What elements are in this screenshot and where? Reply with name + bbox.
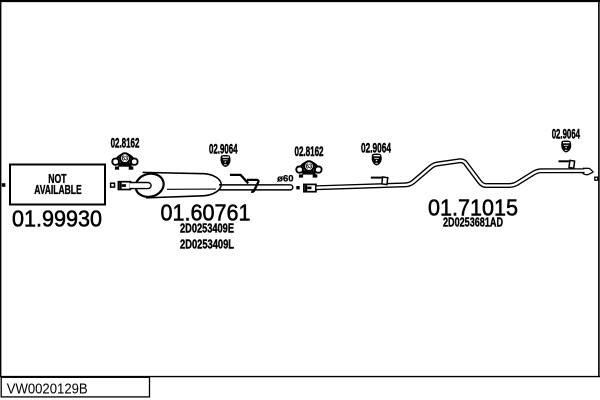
svg-text:AVAILABLE: AVAILABLE: [34, 183, 81, 197]
svg-text:ø60: ø60: [277, 173, 293, 183]
svg-text:63: 63: [122, 156, 128, 163]
svg-text:63: 63: [306, 164, 312, 171]
svg-text:2D0253681AD: 2D0253681AD: [443, 215, 503, 230]
svg-text:VW0020129B: VW0020129B: [7, 382, 88, 398]
svg-text:2D0253409E: 2D0253409E: [180, 221, 234, 236]
svg-text:01.99930: 01.99930: [12, 206, 102, 232]
svg-text:02.8162: 02.8162: [295, 143, 324, 159]
svg-text:02.9064: 02.9064: [361, 139, 391, 155]
svg-text:02.8162: 02.8162: [111, 135, 140, 151]
svg-text:02.9064: 02.9064: [552, 125, 580, 141]
svg-text:2D0253409L: 2D0253409L: [180, 236, 234, 251]
svg-text:02.9064: 02.9064: [209, 141, 238, 157]
